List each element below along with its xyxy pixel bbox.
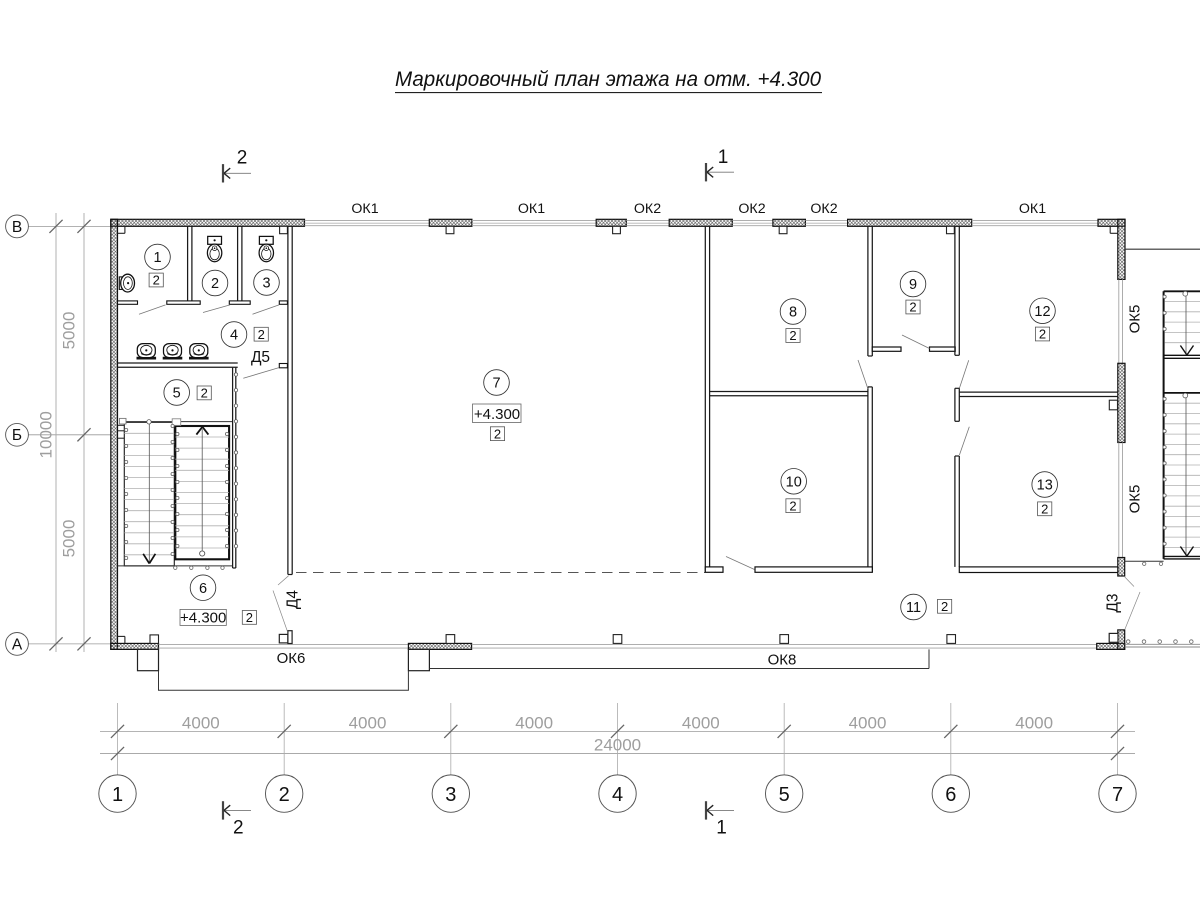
svg-text:5000: 5000: [60, 312, 79, 350]
svg-text:В: В: [12, 219, 22, 236]
svg-text:7: 7: [492, 376, 500, 392]
svg-text:2: 2: [789, 328, 796, 343]
svg-text:ОК5: ОК5: [1127, 485, 1144, 514]
svg-text:2: 2: [258, 327, 265, 342]
svg-text:10: 10: [786, 475, 802, 491]
svg-text:24000: 24000: [594, 735, 641, 754]
svg-text:5000: 5000: [60, 520, 79, 558]
svg-text:6: 6: [199, 581, 207, 597]
svg-text:6: 6: [945, 784, 956, 806]
svg-text:4000: 4000: [515, 713, 553, 732]
svg-text:Д4: Д4: [285, 590, 302, 609]
svg-text:5: 5: [779, 784, 790, 806]
svg-text:1: 1: [718, 147, 729, 168]
svg-text:2: 2: [1041, 502, 1048, 517]
svg-text:9: 9: [909, 277, 917, 293]
svg-text:2: 2: [941, 599, 948, 614]
svg-text:4000: 4000: [349, 713, 387, 732]
svg-text:12: 12: [1034, 304, 1050, 320]
svg-text:ОК1: ОК1: [518, 201, 545, 217]
svg-text:4: 4: [230, 328, 238, 344]
svg-text:ОК5: ОК5: [1127, 305, 1144, 334]
svg-text:2: 2: [153, 273, 160, 288]
svg-text:3: 3: [445, 784, 456, 806]
svg-text:2: 2: [246, 610, 253, 625]
svg-text:13: 13: [1037, 478, 1053, 494]
svg-text:7: 7: [1112, 784, 1123, 806]
svg-text:ОК2: ОК2: [738, 201, 765, 217]
svg-text:1: 1: [112, 784, 123, 806]
svg-text:2: 2: [494, 426, 501, 441]
svg-text:Д3: Д3: [1105, 593, 1122, 612]
svg-text:4000: 4000: [182, 713, 220, 732]
svg-text:11: 11: [906, 600, 921, 616]
svg-text:3: 3: [262, 276, 270, 292]
svg-text:1: 1: [153, 250, 161, 266]
svg-text:2: 2: [279, 784, 290, 806]
svg-text:2: 2: [211, 276, 219, 292]
svg-text:2: 2: [909, 300, 916, 315]
svg-text:1: 1: [716, 817, 727, 838]
svg-text:10000: 10000: [37, 411, 56, 458]
svg-text:А: А: [12, 636, 23, 653]
svg-text:4: 4: [612, 784, 623, 806]
svg-text:5: 5: [173, 386, 181, 402]
svg-text:ОК2: ОК2: [810, 201, 837, 217]
svg-text:4000: 4000: [849, 713, 887, 732]
svg-text:ОК2: ОК2: [634, 201, 661, 217]
svg-text:4000: 4000: [682, 713, 720, 732]
svg-text:+4.300: +4.300: [180, 609, 226, 626]
svg-text:+4.300: +4.300: [474, 406, 520, 423]
svg-text:ОК1: ОК1: [351, 201, 378, 217]
svg-text:Маркировочный план этажа на от: Маркировочный план этажа на отм. +4.300: [395, 67, 821, 91]
svg-text:ОК6: ОК6: [277, 650, 306, 667]
svg-text:2: 2: [1039, 327, 1046, 342]
svg-text:ОК1: ОК1: [1019, 201, 1046, 217]
svg-text:8: 8: [789, 305, 797, 321]
svg-text:2: 2: [201, 386, 208, 401]
svg-text:ОК8: ОК8: [768, 652, 797, 669]
svg-text:2: 2: [237, 148, 248, 169]
svg-text:2: 2: [789, 498, 796, 513]
svg-text:Б: Б: [12, 427, 22, 444]
svg-text:4000: 4000: [1015, 713, 1053, 732]
svg-text:2: 2: [233, 817, 244, 838]
svg-text:Д5: Д5: [251, 349, 270, 366]
